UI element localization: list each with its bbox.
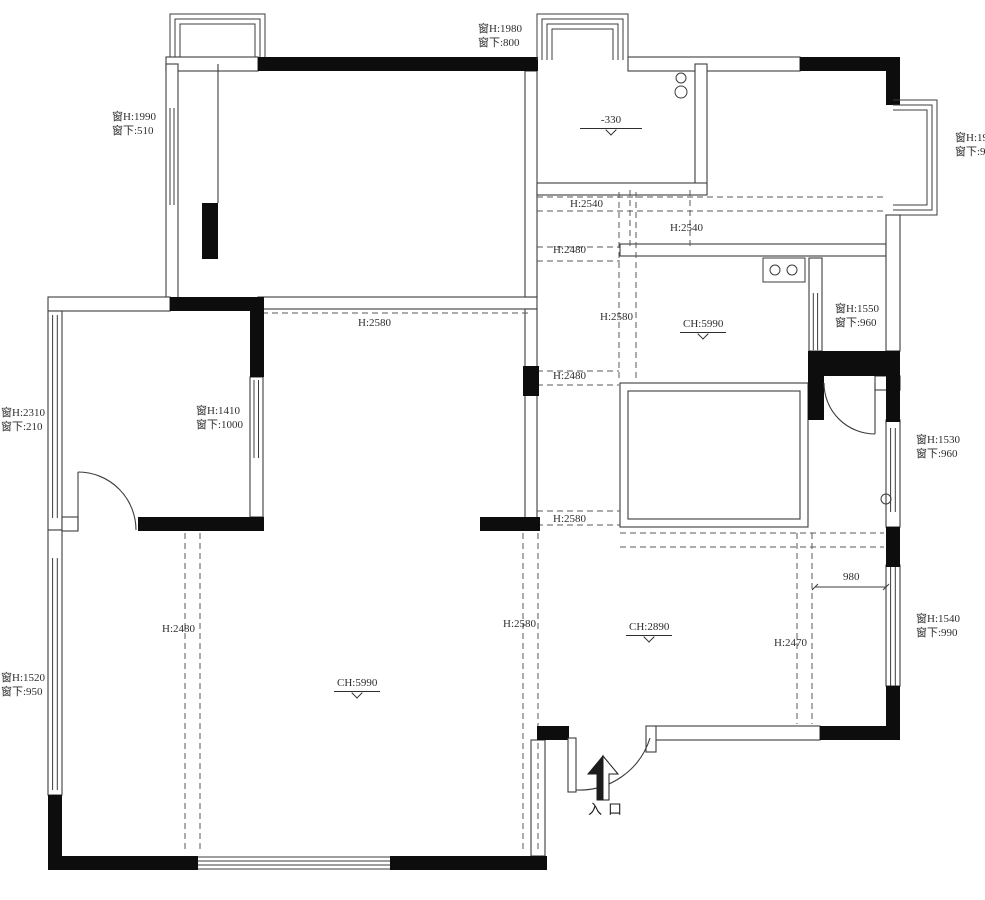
- hob-burner: [787, 265, 797, 275]
- beam-h2580-b: H:2580: [600, 310, 633, 324]
- entrance-label: 入口: [588, 799, 628, 819]
- bay-window-right: [893, 100, 937, 215]
- floor-plan: 窗H:1980窗下:800窗H:1990窗下:510窗H:19窗下:9窗H:15…: [0, 0, 985, 900]
- beam-h2470: H:2470: [774, 636, 807, 650]
- entrance-arrow: [588, 756, 618, 800]
- ceiling-entry: CH:2890: [626, 620, 672, 641]
- win-left-bottom: 窗H:1520窗下:950: [1, 671, 45, 700]
- win-right-mid2: 窗H:1530窗下:960: [916, 433, 960, 462]
- beam-h2540-b: H:2540: [670, 221, 703, 235]
- dimension-line-980: [812, 584, 889, 590]
- win-right-bottom: 窗H:1540窗下:990: [916, 612, 960, 641]
- door-entrance: [568, 726, 656, 792]
- win-right-top: 窗H:19窗下:9: [955, 131, 985, 160]
- beam-h2480-b: H:2480: [553, 369, 586, 383]
- win-bedroom2: 窗H:1410窗下:1000: [196, 404, 243, 433]
- beam-h2580-d: H:2580: [503, 617, 536, 631]
- thin-walls: [48, 57, 900, 856]
- ceiling-kitchen-dining: CH:5990: [680, 317, 726, 338]
- ceiling-living: CH:5990: [334, 676, 380, 697]
- beam-h2540-a: H:2540: [570, 197, 603, 211]
- window-living-bottom: [198, 857, 390, 869]
- door-bathroom: [824, 383, 875, 434]
- beam-h2480-c: H:2480: [162, 622, 195, 636]
- beam-h2580-c: H:2580: [553, 512, 586, 526]
- hob-outline: [763, 258, 805, 282]
- bay-window-top-left: [170, 14, 265, 57]
- dim-980: 980: [843, 570, 860, 584]
- beam-h2580-a: H:2580: [358, 316, 391, 330]
- beam-h2480-a: H:2480: [553, 243, 586, 257]
- lined-room-outline: [620, 383, 808, 527]
- kitchen-fixture-circle: [676, 73, 686, 83]
- bay-window-top-center: [537, 14, 628, 60]
- door-bedroom2: [78, 472, 136, 530]
- hob-burner: [770, 265, 780, 275]
- kitchen-fixture-circle: [675, 86, 687, 98]
- floor-level-kitchen: -330: [580, 113, 642, 134]
- win-top-center: 窗H:1980窗下:800: [478, 22, 522, 51]
- win-left-mid: 窗H:2310窗下:210: [1, 406, 45, 435]
- win-right-mid1: 窗H:1550窗下:960: [835, 302, 879, 331]
- win-top-left: 窗H:1990窗下:510: [112, 110, 156, 139]
